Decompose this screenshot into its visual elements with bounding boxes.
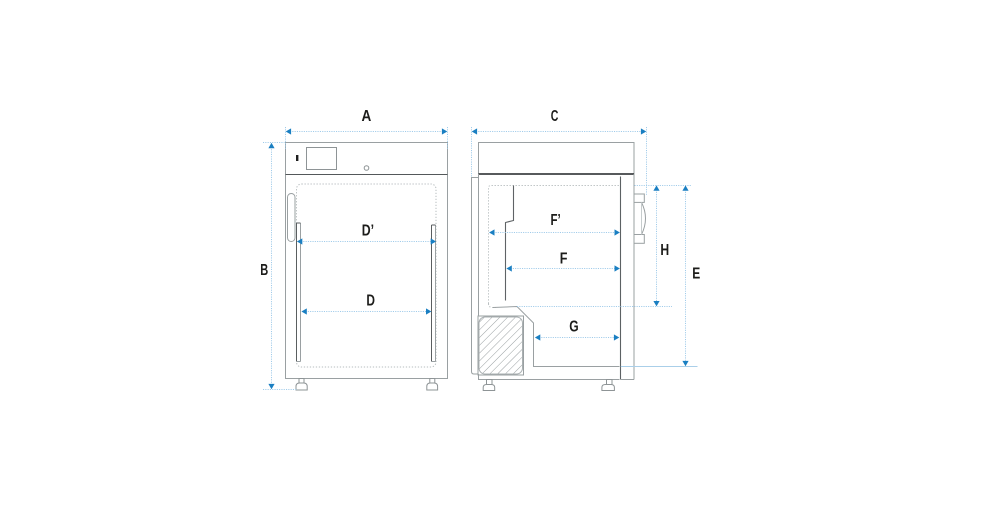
svg-text:G: G	[569, 319, 578, 336]
svg-text:F’: F’	[551, 212, 561, 229]
svg-text:F: F	[560, 251, 568, 268]
svg-text:A: A	[362, 108, 372, 125]
svg-text:C: C	[551, 108, 559, 125]
svg-text:H: H	[660, 242, 669, 259]
svg-text:D’: D’	[362, 223, 374, 240]
svg-text:E: E	[692, 265, 700, 282]
svg-text:D: D	[366, 293, 375, 310]
svg-text:B: B	[260, 262, 268, 279]
